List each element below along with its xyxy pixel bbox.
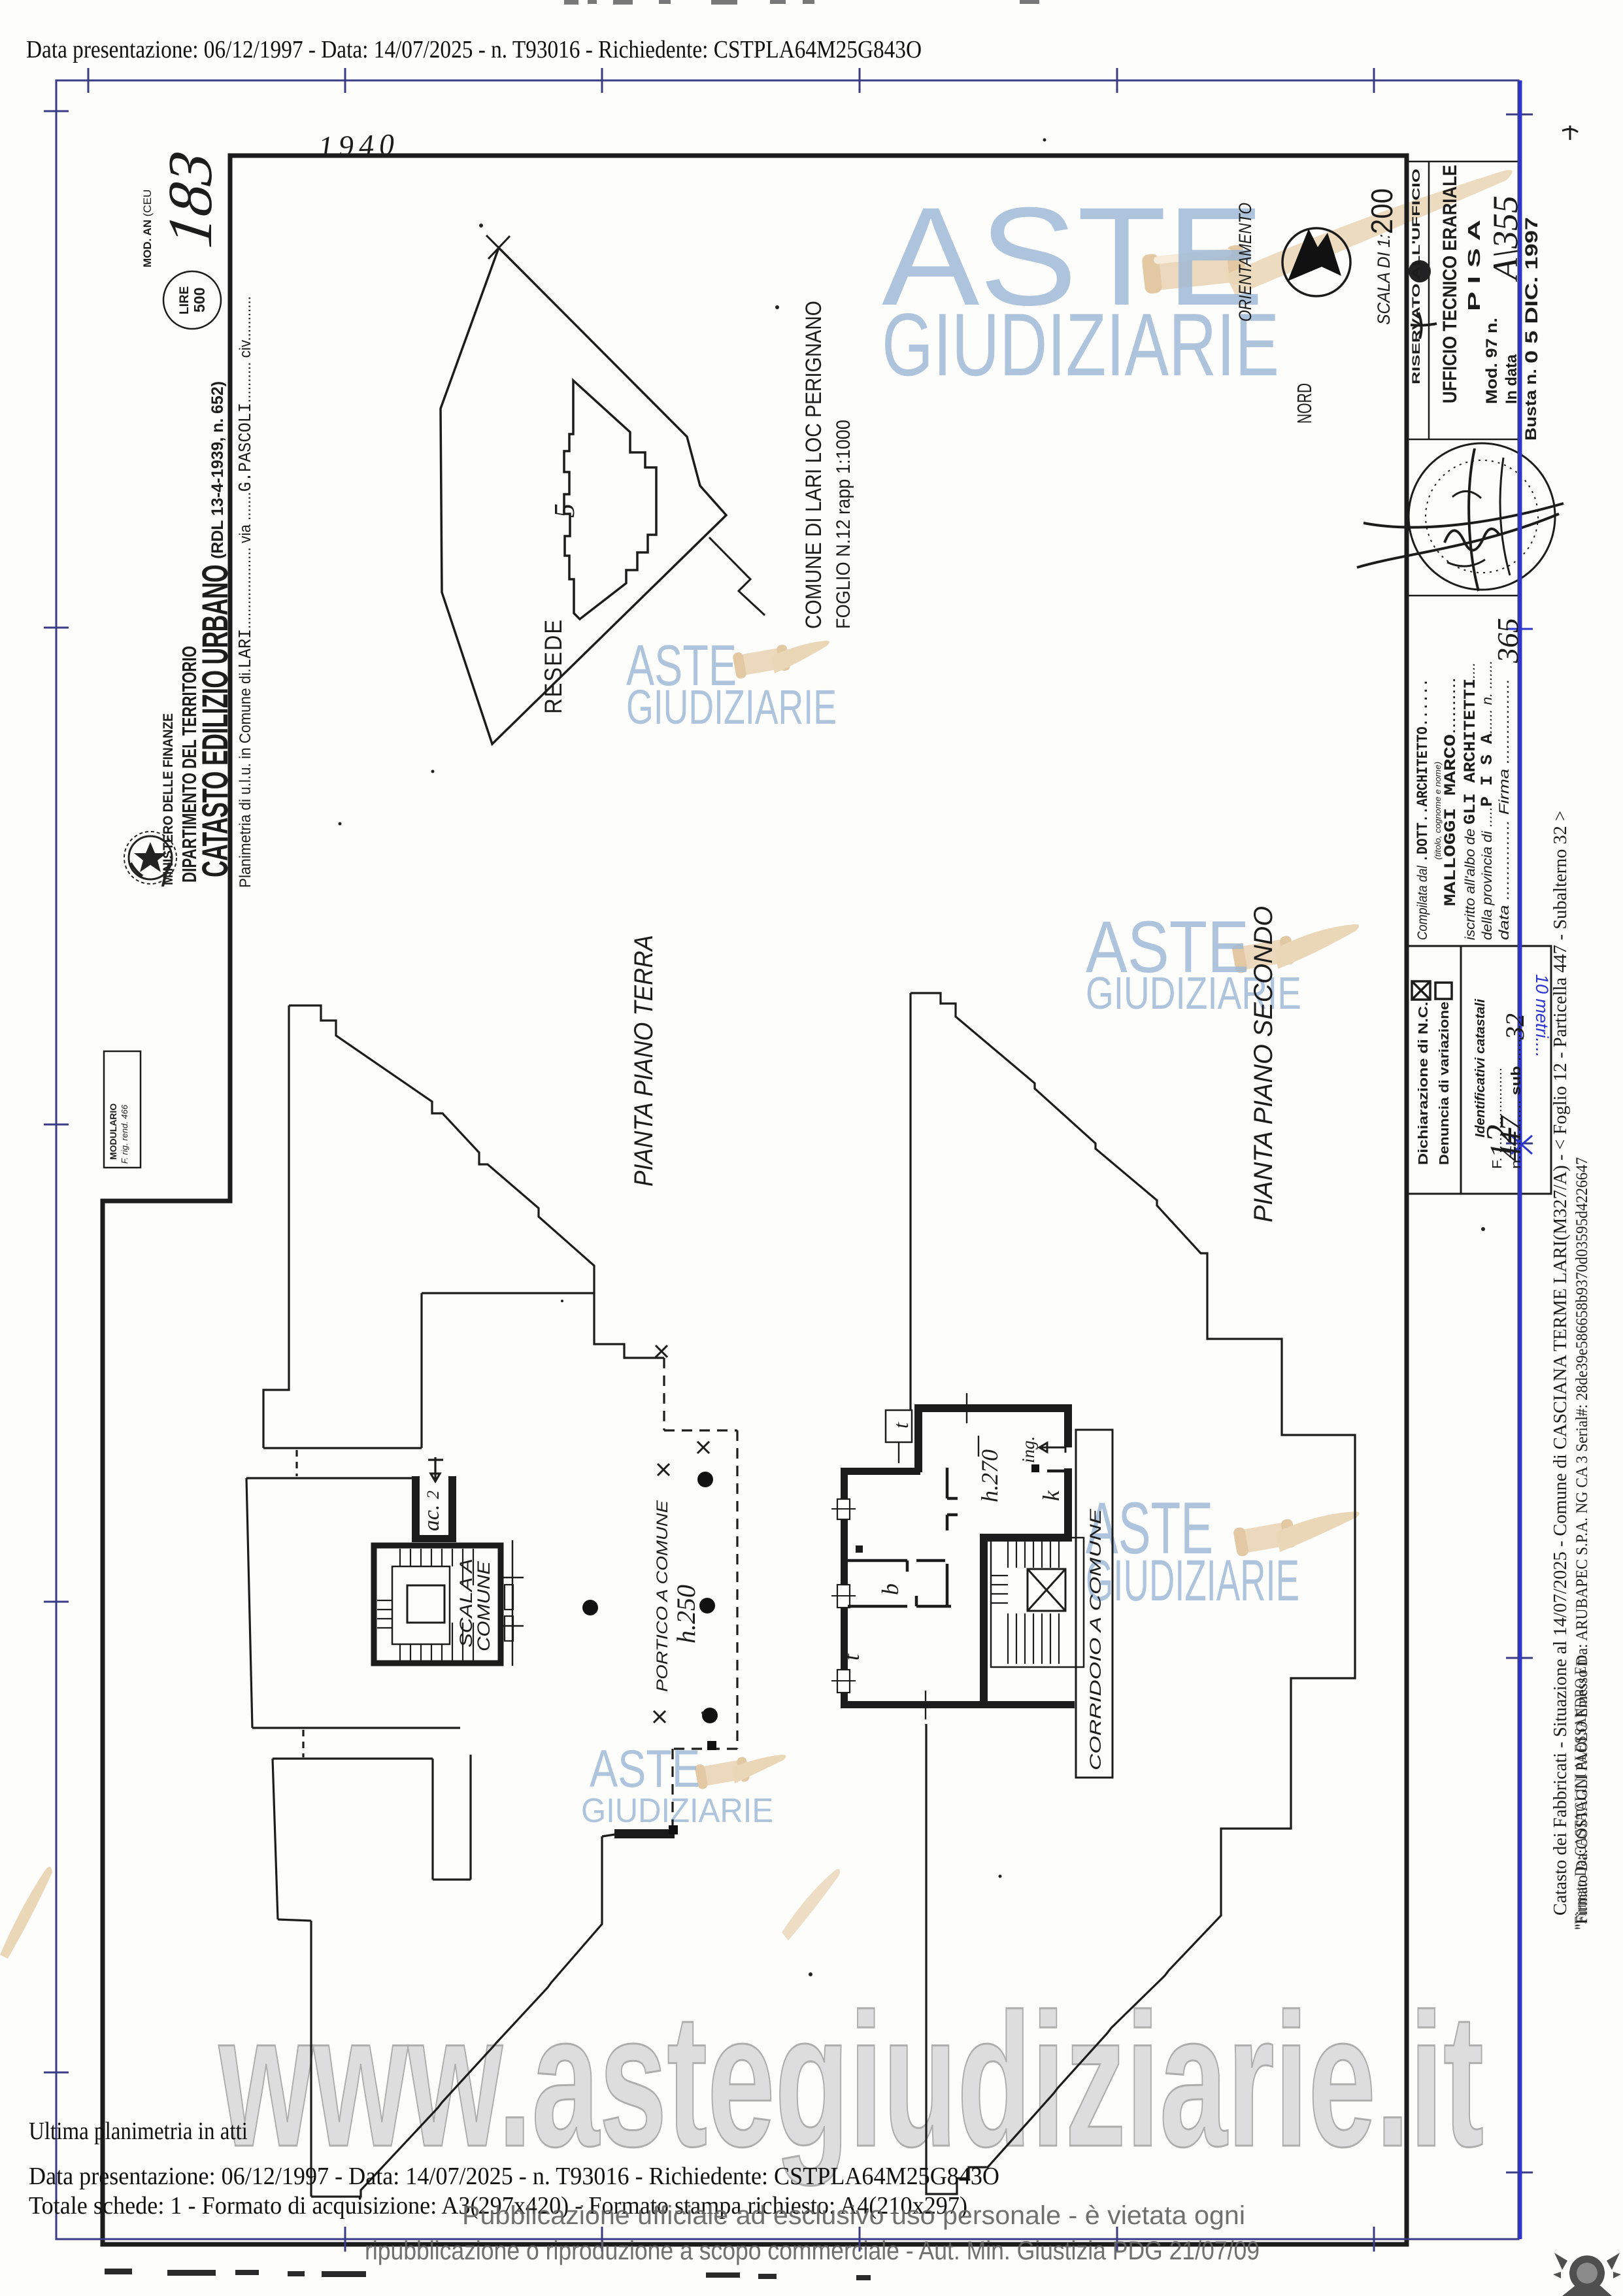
svg-text:iscritto all'albo de GLI ARCHI: iscritto all'albo de GLI ARCHITETTI.... (1461, 662, 1480, 940)
svg-text:ripubblicazione o riproduzione: ripubblicazione o riproduzione a scopo c… (365, 2237, 1260, 2265)
svg-text:Ultima planimetria in atti: Ultima planimetria in atti (29, 2118, 248, 2145)
svg-text:SCALA DI 1:200: SCALA DI 1:200 (1365, 188, 1399, 325)
svg-text:Data presentazione: 06/12/1997: Data presentazione: 06/12/1997 - Data: 1… (29, 2163, 999, 2190)
svg-text:UFFICIO TECNICO ERARIALE: UFFICIO TECNICO ERARIALE (1439, 165, 1461, 403)
svg-text:COMUNE DI LARI LOC PERIGNANO: COMUNE DI LARI LOC PERIGNANO (801, 301, 826, 629)
svg-text:NORD: NORD (1293, 383, 1316, 424)
svg-text:Compilata dal .DOTT..ARCHITETT: Compilata dal .DOTT..ARCHITETTO...... (1414, 679, 1431, 940)
svg-text:Mod. 97 n.: Mod. 97 n. (1483, 318, 1501, 404)
svg-text:"Firmato Da:CASTAGLINI ALESSAN: "Firmato Da:CASTAGLINI ALESSANDRO Em (1572, 1655, 1590, 1930)
svg-text:(RDL 13-4-1939, n. 652): (RDL 13-4-1939, n. 652) (209, 381, 227, 559)
svg-text:RISERVATO ALL'UFFICIO: RISERVATO ALL'UFFICIO (1410, 169, 1422, 384)
svg-text:PIANTA PIANO SECONDO: PIANTA PIANO SECONDO (1249, 906, 1278, 1223)
svg-text:Busta n.: Busta n. (1522, 369, 1540, 441)
svg-text:ORIENTAMENTO: ORIENTAMENTO (1235, 203, 1255, 322)
svg-text:MOD. AN (CEU: MOD. AN (CEU (141, 190, 154, 267)
svg-text:della provincia di .....P I S: della provincia di .....P I S A...... n.… (1478, 660, 1497, 940)
svg-text:Data presentazione: 06/12/1997: Data presentazione: 06/12/1997 - Data: 1… (26, 36, 922, 63)
svg-text:Planimetria di u.l.u. in Comun: Planimetria di u.l.u. in Comune di.LARI.… (237, 296, 256, 888)
svg-text:Catasto dei Fabbricati - Situa: Catasto dei Fabbricati - Situazione al 1… (1550, 811, 1571, 1916)
svg-text:In data: In data (1503, 354, 1520, 404)
svg-text:PORTICO A COMUNE: PORTICO A COMUNE (654, 1500, 671, 1692)
svg-text:CATASTO EDILIZIO URBANO: CATASTO EDILIZIO URBANO (194, 565, 235, 877)
svg-text:data ................ Firma .: data ................ Firma ............… (1497, 679, 1512, 940)
svg-text:CORRIDOIO A COMUNE: CORRIDOIO A COMUNE (1087, 1508, 1105, 1770)
svg-text:SCALA A: SCALA A (456, 1559, 476, 1647)
svg-text:PIANTA PIANO TERRA: PIANTA PIANO TERRA (629, 935, 658, 1187)
svg-text:Denuncia di variazione: Denuncia di variazione (1437, 1002, 1452, 1165)
svg-text:MALLOGGI MARCO..........: MALLOGGI MARCO.......... (1441, 677, 1460, 906)
svg-text:Pubblicazione ufficiale ad esc: Pubblicazione ufficiale ad esclusivo uso… (462, 2201, 1245, 2230)
svg-text:RESEDE: RESEDE (540, 618, 567, 714)
svg-text:FOGLIO N.12 rapp 1:1000: FOGLIO N.12 rapp 1:1000 (833, 420, 854, 629)
svg-text:Identificativi catastali: Identificativi catastali (1473, 999, 1488, 1138)
svg-text:Dichiarazione di N.C.: Dichiarazione di N.C. (1416, 1002, 1431, 1165)
svg-text:COMUNE: COMUNE (474, 1561, 494, 1651)
svg-text:P I S A: P I S A (1464, 220, 1484, 311)
